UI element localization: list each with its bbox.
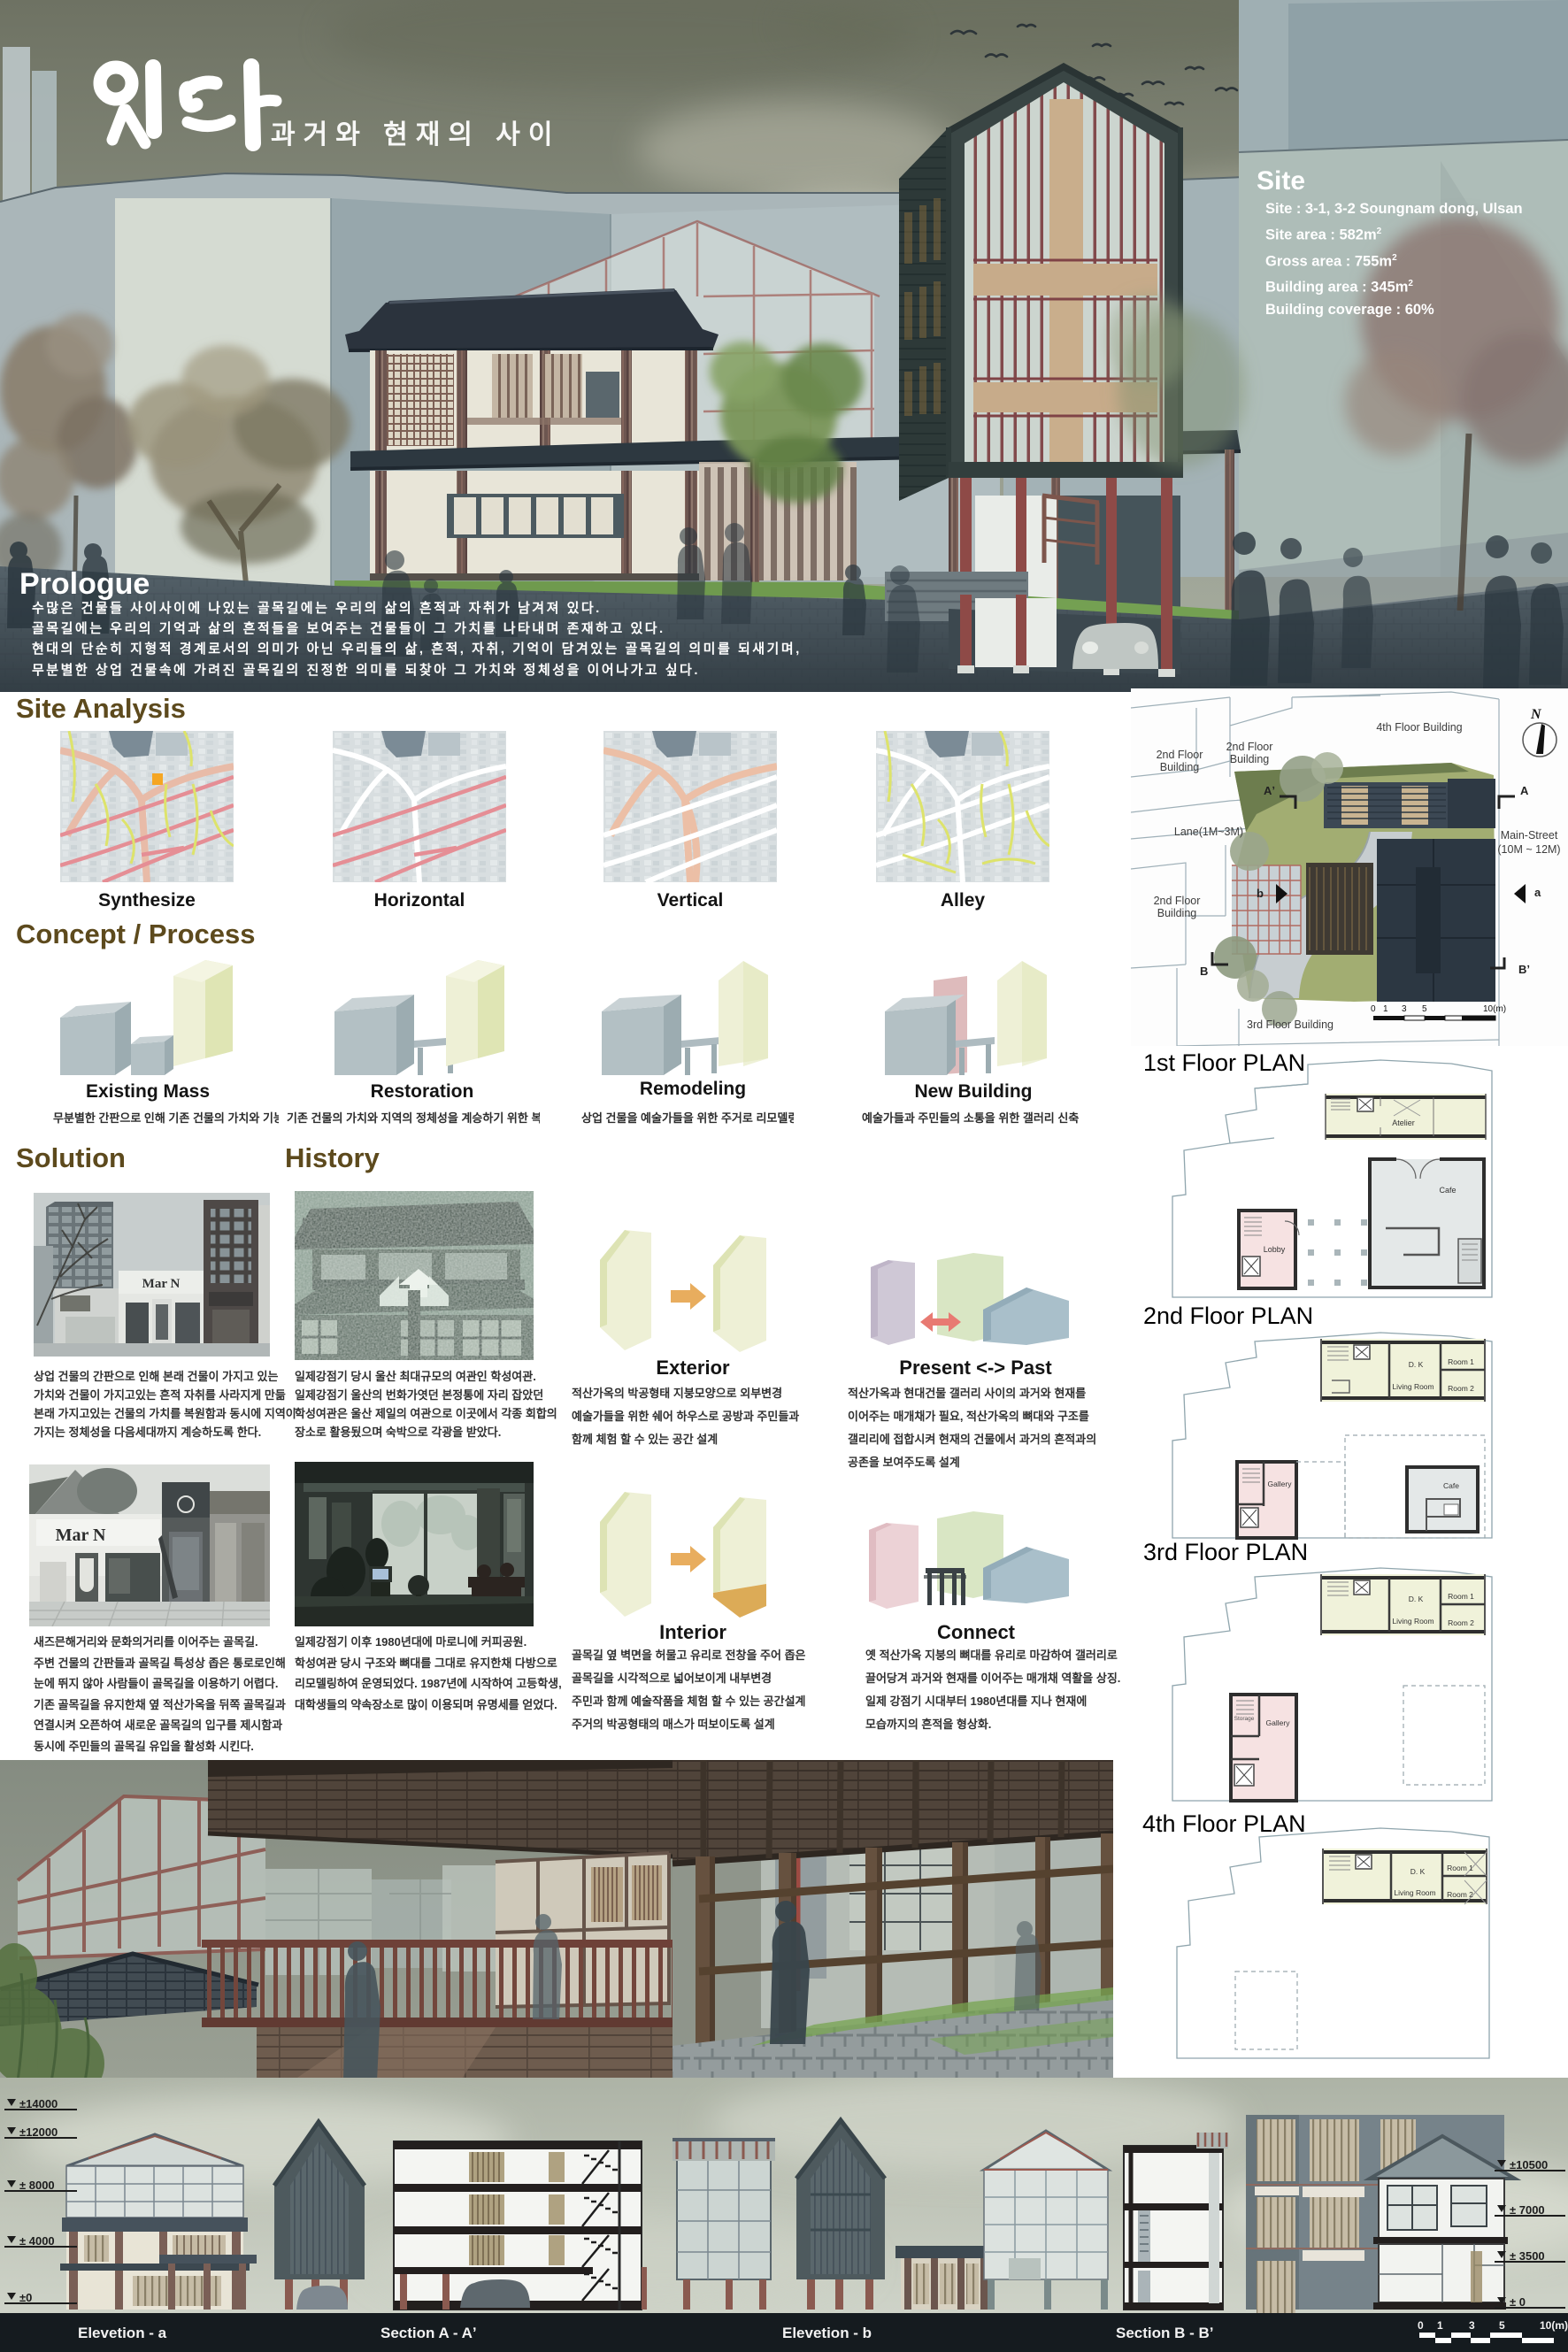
svg-text:5: 5 [1422,1004,1427,1014]
svg-text:±0: ±0 [19,2291,32,2304]
svg-text:5: 5 [1499,2319,1505,2332]
svg-text:Aʼ: Aʼ [1264,784,1275,797]
svg-text:(10M ~ 12M): (10M ~ 12M) [1497,843,1560,856]
svg-text:a: a [1534,886,1541,899]
svg-text:D. K: D. K [1410,1867,1426,1876]
svg-text:± 7000: ± 7000 [1510,2203,1545,2217]
svg-text:± 3500: ± 3500 [1510,2249,1545,2263]
svg-text:B: B [1200,965,1208,978]
svg-text:±12000: ±12000 [19,2125,58,2139]
svg-text:Gallery: Gallery [1268,1480,1293,1488]
svg-text:10(m): 10(m) [1483,1004,1506,1014]
svg-text:Room 1: Room 1 [1448,1592,1474,1601]
svg-text:± 8000: ± 8000 [19,2179,55,2192]
svg-text:Section A - Aʼ: Section A - Aʼ [380,2325,477,2341]
svg-text:1: 1 [1383,1004,1388,1014]
svg-text:Cafe: Cafe [1443,1481,1459,1490]
svg-text:2nd Floor: 2nd Floor [1157,749,1203,761]
svg-text:Gallery: Gallery [1266,1718,1291,1727]
svg-text:4th Floor Building: 4th Floor Building [1376,721,1462,734]
svg-text:2nd Floor: 2nd Floor [1154,895,1201,907]
svg-text:3rd Floor Building: 3rd Floor Building [1247,1018,1334,1031]
svg-text:Cafe: Cafe [1439,1186,1456,1195]
svg-text:N: N [1530,707,1542,722]
svg-text:Lane(1M~3M): Lane(1M~3M) [1174,826,1243,838]
svg-text:±10500: ±10500 [1510,2158,1548,2171]
svg-text:D. K: D. K [1409,1595,1424,1603]
svg-text:A: A [1520,784,1529,797]
svg-text:Room 2: Room 2 [1447,1890,1473,1899]
svg-text:Atelier: Atelier [1392,1118,1415,1127]
svg-text:1: 1 [1437,2319,1443,2332]
svg-text:Main-Street: Main-Street [1501,829,1558,842]
svg-text:2nd Floor: 2nd Floor [1226,741,1273,753]
svg-text:10(m): 10(m) [1540,2319,1568,2332]
svg-text:Room 1: Room 1 [1447,1864,1473,1872]
svg-text:3: 3 [1402,1004,1407,1014]
svg-text:± 4000: ± 4000 [19,2234,55,2248]
svg-text:D. K: D. K [1409,1360,1424,1369]
svg-text:b: b [1257,887,1264,900]
svg-text:Bʼ: Bʼ [1518,963,1530,976]
svg-text:Living Room: Living Room [1392,1617,1433,1626]
svg-text:± 0: ± 0 [1510,2295,1526,2309]
svg-text:Lobby: Lobby [1264,1245,1286,1254]
svg-text:Elevetion - a: Elevetion - a [78,2325,167,2341]
svg-text:Building: Building [1230,753,1270,765]
svg-text:3: 3 [1469,2319,1475,2332]
svg-text:0: 0 [1418,2319,1424,2332]
svg-text:Living Room: Living Room [1392,1382,1433,1391]
svg-text:Elevetion - b: Elevetion - b [782,2325,872,2341]
svg-text:Section B - Bʼ: Section B - Bʼ [1116,2325,1214,2341]
svg-text:±14000: ±14000 [19,2097,58,2110]
svg-text:Building: Building [1157,907,1197,919]
svg-text:Storage: Storage [1234,1716,1255,1722]
svg-text:Room 1: Room 1 [1448,1357,1474,1366]
svg-text:Room 2: Room 2 [1448,1384,1474,1393]
svg-text:Building: Building [1160,761,1200,773]
svg-text:Room 2: Room 2 [1448,1618,1474,1627]
svg-text:Living Room: Living Room [1394,1888,1435,1897]
svg-text:0: 0 [1371,1004,1376,1014]
